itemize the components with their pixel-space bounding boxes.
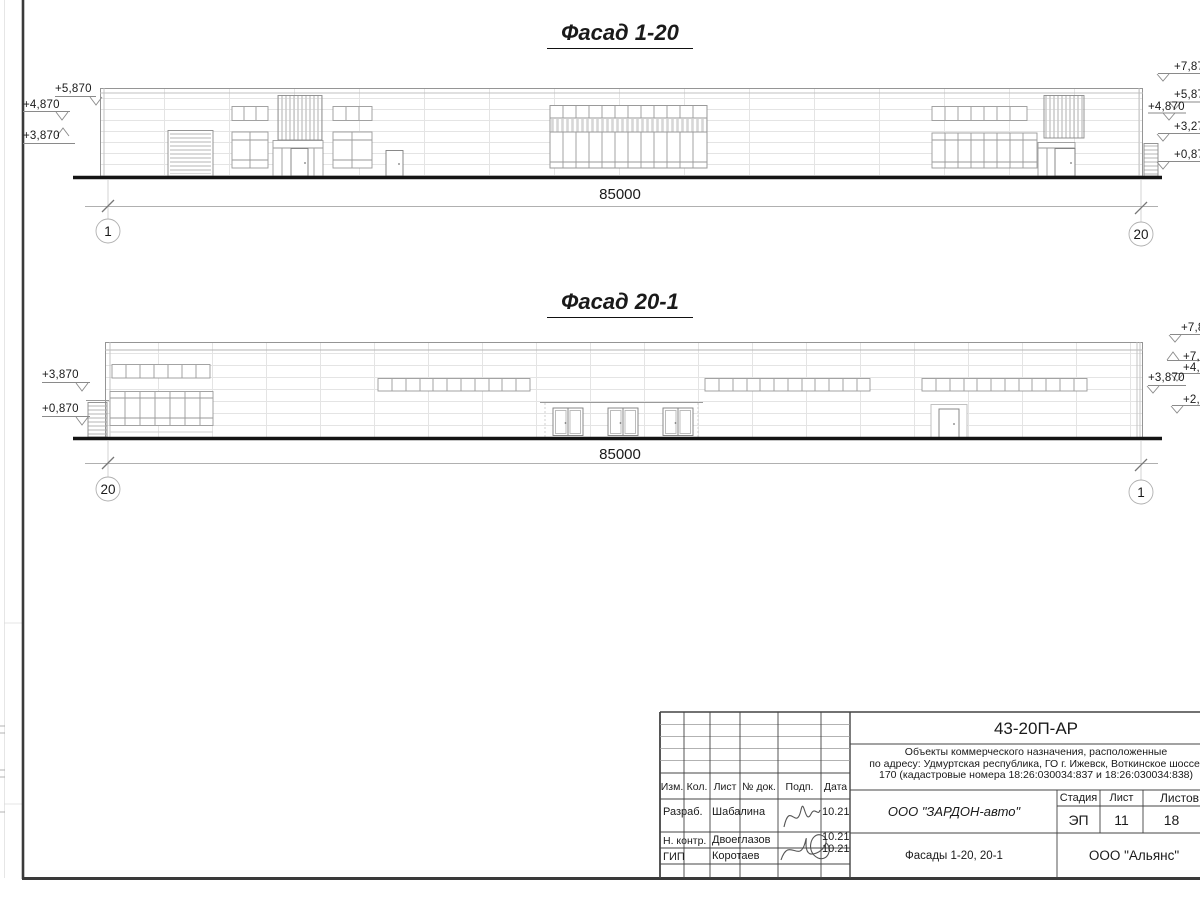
organization-name: ООО "Альянс" xyxy=(1058,834,1200,877)
col-header-data: Дата xyxy=(821,776,850,798)
staff-date: 10.21 xyxy=(822,806,850,818)
col-header-list: Лист xyxy=(710,776,740,798)
roller-door xyxy=(168,131,213,177)
staff-date: 10.21 xyxy=(822,843,850,855)
facade-20-1-drawing xyxy=(73,342,1162,439)
axis-bubble-1: 1 xyxy=(96,224,120,239)
facade-1-20-drawing xyxy=(73,88,1162,178)
elevation-mark: +4,870 xyxy=(1148,101,1185,113)
sheet-name: Фасады 1-20, 20-1 xyxy=(851,834,1057,877)
list-value: 11 xyxy=(1100,807,1143,832)
storefront-2 xyxy=(932,107,1037,169)
elevation-mark: +5,87 xyxy=(1174,89,1200,101)
single-door xyxy=(931,405,967,438)
facade-20-1-title: Фасад 20-1 xyxy=(470,289,770,315)
stage-value: ЭП xyxy=(1057,807,1100,832)
staff-role: Разраб. xyxy=(663,806,703,818)
staff-role: Н. контр. xyxy=(663,835,706,847)
elevation-mark: +7,87 xyxy=(1174,61,1200,73)
elevation-mark: +0,870 xyxy=(42,403,79,415)
corner-slats-left xyxy=(86,401,109,438)
elevation-mark: +4,8 xyxy=(1183,362,1200,374)
elevation-mark: +0,87 xyxy=(1174,149,1200,161)
signature-1 xyxy=(784,806,820,827)
elevation-mark: +3,27 xyxy=(1174,121,1200,133)
col-header-doc: № док. xyxy=(740,776,778,798)
staff-name: Двоеглазов xyxy=(712,834,770,846)
entrance-zone xyxy=(540,403,703,438)
staff-date: 10.21 xyxy=(822,831,850,843)
axis-bubble-1b: 1 xyxy=(1129,485,1153,500)
project-description-line: Объекты коммерческого назначения, распол… xyxy=(852,747,1200,759)
facade-1-20-title-text: Фасад 1-20 xyxy=(547,20,693,49)
elevation-mark: +4,870 xyxy=(23,99,60,111)
elevation-mark: +7,8 xyxy=(1181,322,1200,334)
staff-name: Коротаев xyxy=(712,850,760,862)
side-door xyxy=(386,151,403,177)
col-header-podp: Подп. xyxy=(778,776,821,798)
facade-20-1-dimension-label: 85000 xyxy=(570,446,670,463)
axis-bubble-20: 20 xyxy=(1129,227,1153,242)
staff-name: Шабалина xyxy=(712,806,765,818)
double-door-1 xyxy=(553,408,583,436)
strip-windows-2 xyxy=(705,379,870,392)
staff-role: ГИП xyxy=(663,851,685,863)
list-header: Лист xyxy=(1100,791,1143,805)
corner-slats-right xyxy=(1144,144,1158,177)
window-b xyxy=(333,107,372,169)
elevation-mark: +5,870 xyxy=(55,83,92,95)
listov-header: Листов xyxy=(1160,791,1200,805)
project-description-line: 170 (кадастровые номера 18:26:030034:837… xyxy=(852,770,1200,782)
col-header-izm: Изм. xyxy=(660,776,684,798)
listov-value: 18 xyxy=(1143,807,1200,832)
double-door-3 xyxy=(663,408,693,436)
facade-1-20-title: Фасад 1-20 xyxy=(470,20,770,46)
elevation-mark: +3,870 xyxy=(23,130,60,142)
storefront-1 xyxy=(550,106,707,169)
double-door-2 xyxy=(608,408,638,436)
facade-1-20-dimension-label: 85000 xyxy=(570,186,670,203)
doc-number: 43-20П-АР xyxy=(852,714,1200,743)
strip-windows-1 xyxy=(378,379,530,392)
strip-windows-3 xyxy=(922,379,1087,392)
stage-header: Стадия xyxy=(1057,791,1100,805)
elevation-mark: +3,870 xyxy=(42,369,79,381)
storefront-left xyxy=(110,365,213,433)
col-header-kol: Кол. xyxy=(684,776,710,798)
window-a xyxy=(232,107,268,169)
elevation-mark: +2,1 xyxy=(1183,394,1200,406)
project-description: Объекты коммерческого назначения, распол… xyxy=(852,747,1200,782)
drawing-sheet: { "sheet": { "facade_top": { "title": "Ф… xyxy=(0,0,1200,900)
louver-panel-left xyxy=(278,96,322,141)
elevation-mark: +3,870 xyxy=(1148,372,1185,384)
facade-20-1-title-text: Фасад 20-1 xyxy=(547,289,693,318)
entrance-1 xyxy=(273,141,323,177)
client-name: ООО "ЗАРДОН-авто" xyxy=(851,791,1057,832)
axis-bubble-20b: 20 xyxy=(96,482,120,497)
louver-panel-right xyxy=(1044,96,1084,139)
entrance-2 xyxy=(1038,143,1075,177)
